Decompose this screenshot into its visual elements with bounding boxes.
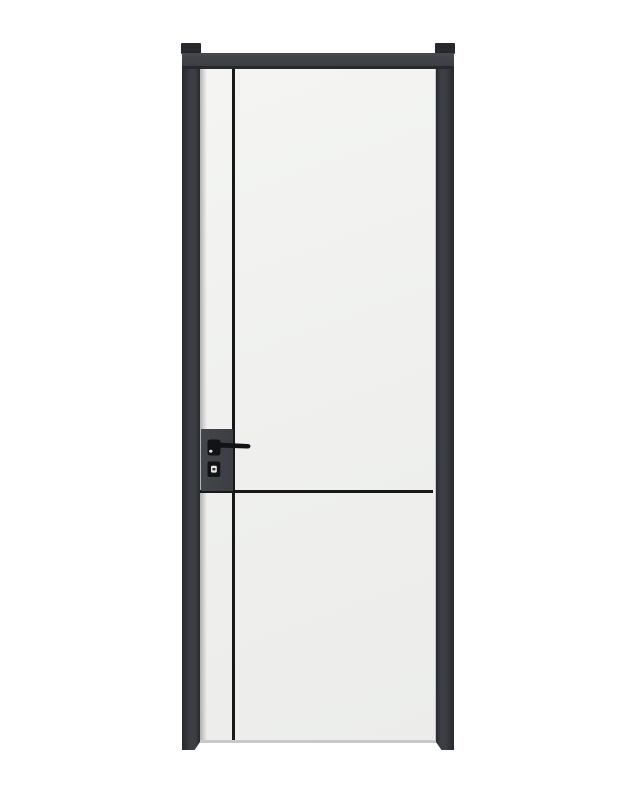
door-hardware (201, 429, 261, 491)
keyhole-emblem-core (212, 468, 215, 470)
handle-lever (212, 442, 250, 448)
handle-highlight (209, 450, 212, 453)
product-photo (0, 0, 640, 800)
frame-jamb-left (182, 53, 200, 750)
door-assembly (182, 43, 454, 750)
vertical-groove-line (232, 67, 235, 740)
leaf-edge-shadow (200, 67, 207, 740)
frame-header (182, 53, 454, 69)
handle-neck (212, 447, 217, 451)
door-leaf (200, 67, 437, 743)
frame-jamb-right (436, 53, 454, 750)
